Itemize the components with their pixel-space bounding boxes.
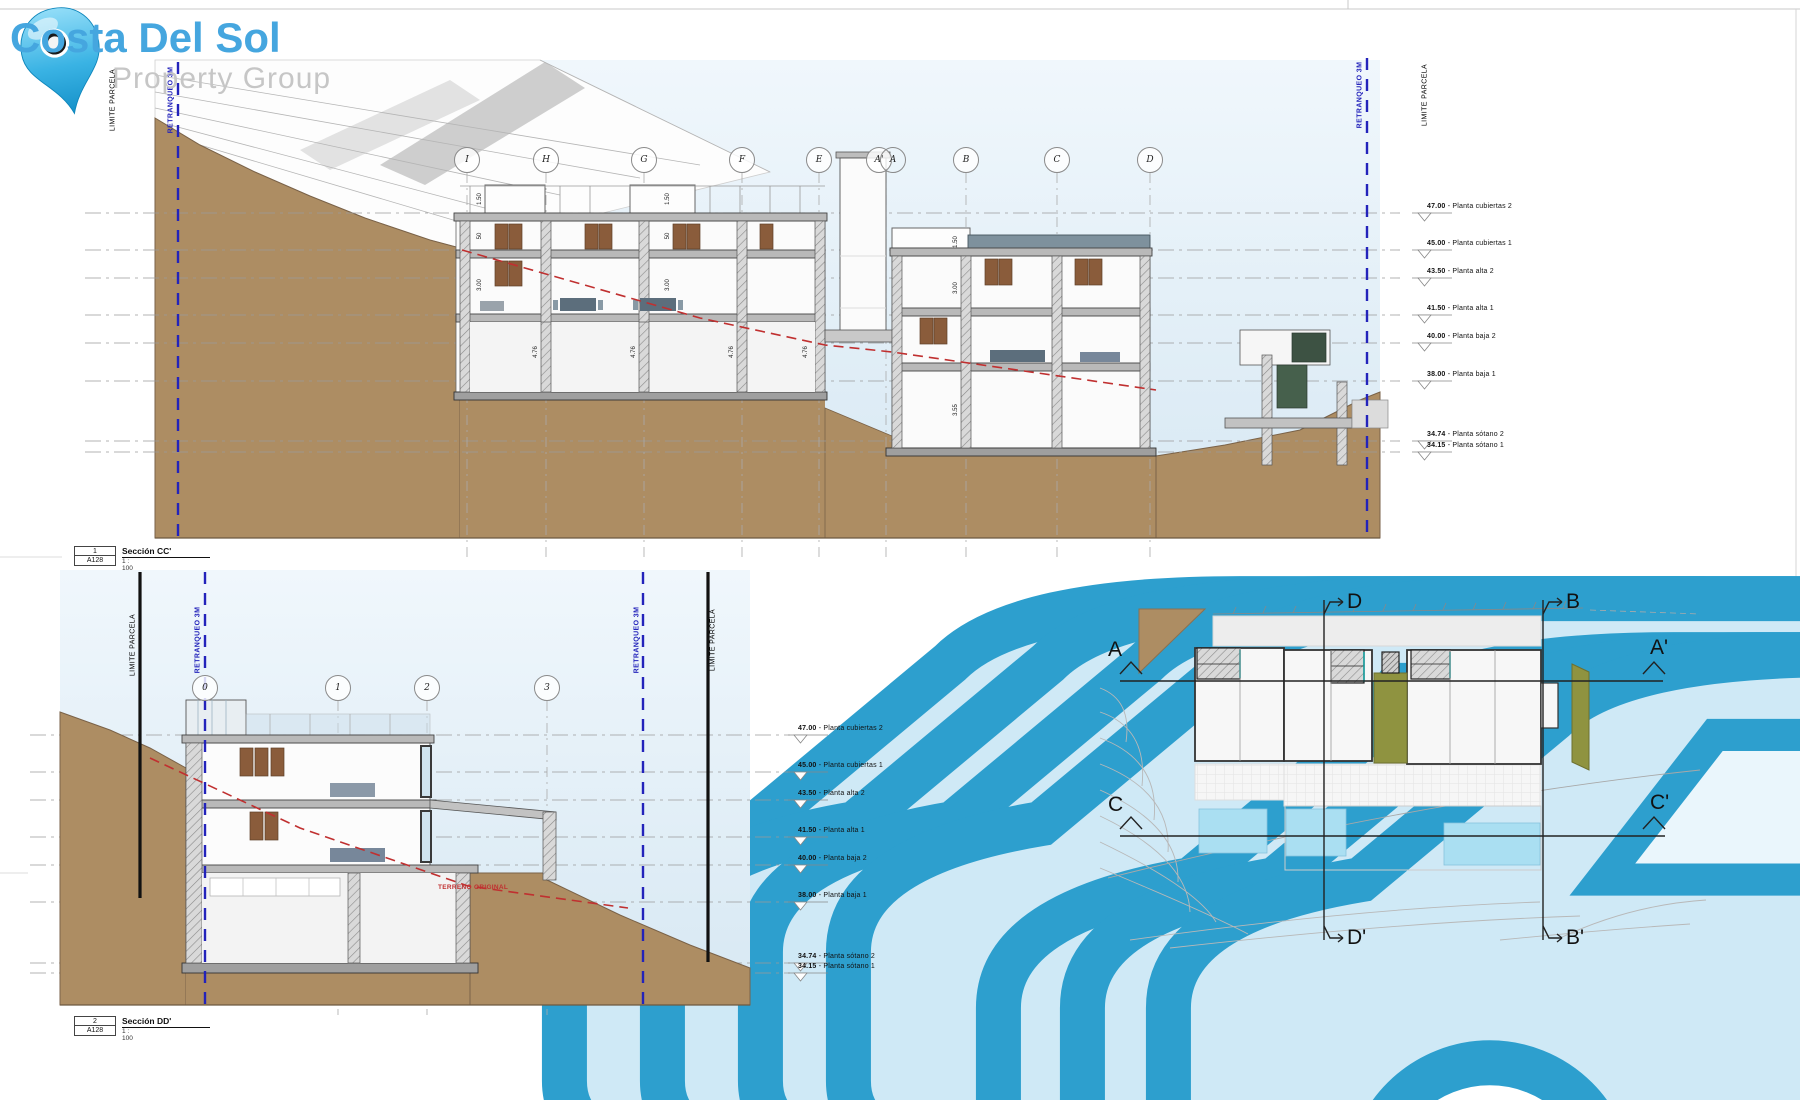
cc-grid-bubble-a: A bbox=[880, 147, 906, 173]
cc-grid-bubble-i: I bbox=[454, 147, 480, 173]
cc-level-label: 47.00 - Planta cubiertas 2 bbox=[1427, 203, 1512, 210]
plan-mark-a-prime: A' bbox=[1650, 636, 1668, 660]
dd-level-label: 41.50 - Planta alta 1 bbox=[798, 827, 865, 834]
dd-view-scale: 1 : 100 bbox=[122, 1028, 133, 1042]
plan-mark-b: B bbox=[1566, 590, 1580, 614]
dim-floor: 3.00 bbox=[953, 282, 959, 294]
dd-limit-label-left: LIMITE PARCELA bbox=[130, 614, 137, 676]
cc-level-label: 43.50 - Planta alta 2 bbox=[1427, 268, 1494, 275]
dim-floor: 3.00 bbox=[477, 279, 483, 291]
cc-grid-bubble-h: H bbox=[533, 147, 559, 173]
logo-subtitle: Property Group bbox=[112, 62, 331, 96]
cc-level-label: 41.50 - Planta alta 1 bbox=[1427, 305, 1494, 312]
dd-view-number: 2 bbox=[74, 1016, 116, 1026]
plan-mark-b-prime: B' bbox=[1566, 926, 1584, 950]
cc-view-title: Sección CC' bbox=[122, 546, 210, 558]
plan-mark-c-prime: C' bbox=[1650, 791, 1669, 815]
dim-garage: 3.55 bbox=[953, 404, 959, 416]
dd-level-label: 43.50 - Planta alta 2 bbox=[798, 790, 865, 797]
dim-garage: 4.76 bbox=[533, 346, 539, 358]
plan-mark-c: C bbox=[1108, 793, 1123, 817]
dim-parapet: 1.50 bbox=[665, 193, 671, 205]
dim-garage: 4.76 bbox=[729, 346, 735, 358]
plan-mark-d: D bbox=[1347, 590, 1362, 614]
cc-setback-label-right: RETRANQUEO 3M bbox=[1357, 62, 1364, 129]
dd-furniture bbox=[330, 783, 375, 797]
dim-parapet: 1.50 bbox=[477, 193, 483, 205]
plan-terrace-2 bbox=[1284, 764, 1541, 806]
dd-level-label: 45.00 - Planta cubiertas 1 bbox=[798, 762, 883, 769]
cc-level-label: 45.00 - Planta cubiertas 1 bbox=[1427, 240, 1512, 247]
plan-mark-d-prime: D' bbox=[1347, 926, 1366, 950]
cc-level-label: 38.00 - Planta baja 1 bbox=[1427, 371, 1496, 378]
plan-mark-a: A bbox=[1108, 638, 1122, 662]
dd-level-label: 40.00 - Planta baja 2 bbox=[798, 855, 867, 862]
dd-setback-label-left: RETRANQUEO 3M bbox=[195, 607, 202, 674]
cc-grid-bubble-e: E bbox=[806, 147, 832, 173]
plan-upper-terrace bbox=[1213, 616, 1541, 646]
dim-slab: 50 bbox=[665, 233, 671, 240]
cc-view-number: 1 bbox=[74, 546, 116, 556]
cc-sheet-number: A128 bbox=[74, 556, 116, 566]
dim-parapet: 1.50 bbox=[953, 236, 959, 248]
dd-sheet-number: A128 bbox=[74, 1026, 116, 1036]
dd-setback-label-right: RETRANQUEO 3M bbox=[634, 607, 641, 674]
dim-slab: 50 bbox=[477, 233, 483, 240]
dd-level-label: 34.74 - Planta sótano 2 bbox=[798, 953, 875, 960]
dd-level-label: 47.00 - Planta cubiertas 2 bbox=[798, 725, 883, 732]
cc-limit-label-right: LIMITE PARCELA bbox=[1422, 64, 1429, 126]
dd-terrain-note: TERRENO ORIGINAL bbox=[438, 884, 508, 891]
cc-grid-bubble-b: B bbox=[953, 147, 979, 173]
cc-grid-bubble-g: G bbox=[631, 147, 657, 173]
dim-garage: 4.76 bbox=[803, 346, 809, 358]
dd-grid-bubble-0: 0 bbox=[192, 675, 218, 701]
dd-level-label: 34.15 - Planta sótano 1 bbox=[798, 963, 875, 970]
drawing-sheet: Costa Del Sol Property Group I H G F E A… bbox=[0, 0, 1800, 1100]
logo-title: Costa Del Sol bbox=[10, 14, 281, 62]
cc-grid-bubble-c: C bbox=[1044, 147, 1070, 173]
dd-level-label: 38.00 - Planta baja 1 bbox=[798, 892, 867, 899]
cc-view-scale: 1 : 100 bbox=[122, 558, 133, 572]
cc-level-label: 40.00 - Planta baja 2 bbox=[1427, 333, 1496, 340]
plan-planter-1 bbox=[1374, 673, 1407, 763]
dim-floor: 3.00 bbox=[665, 279, 671, 291]
dd-grid-bubble-1: 1 bbox=[325, 675, 351, 701]
dd-grid-bubble-3: 3 bbox=[534, 675, 560, 701]
dd-view-title: Sección DD' bbox=[122, 1016, 210, 1028]
dd-limit-label-right: LIMITE PARCELA bbox=[710, 609, 717, 671]
dd-grid-bubble-2: 2 bbox=[414, 675, 440, 701]
dim-garage: 4.76 bbox=[631, 346, 637, 358]
cc-level-label: 34.74 - Planta sótano 2 bbox=[1427, 431, 1504, 438]
cc-grid-bubble-f: F bbox=[729, 147, 755, 173]
cc-grid-bubble-d: D bbox=[1137, 147, 1163, 173]
cc-level-label: 34.15 - Planta sótano 1 bbox=[1427, 442, 1504, 449]
plan-planter-2 bbox=[1572, 664, 1589, 770]
